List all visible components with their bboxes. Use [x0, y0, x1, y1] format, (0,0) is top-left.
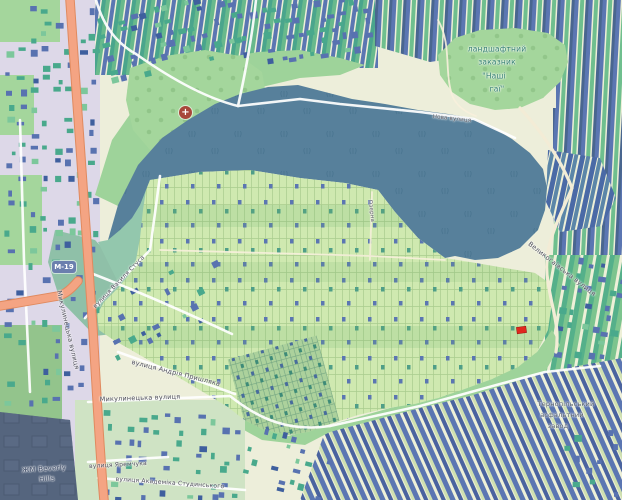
map-canvas[interactable]: М-19 + Микулинецька вулиця ландшафтний з… [0, 0, 622, 500]
map-tiles [0, 0, 622, 500]
highlighted-building [517, 326, 527, 333]
hospital-icon[interactable]: + [179, 106, 192, 119]
route-shield: М-19 [52, 261, 76, 273]
